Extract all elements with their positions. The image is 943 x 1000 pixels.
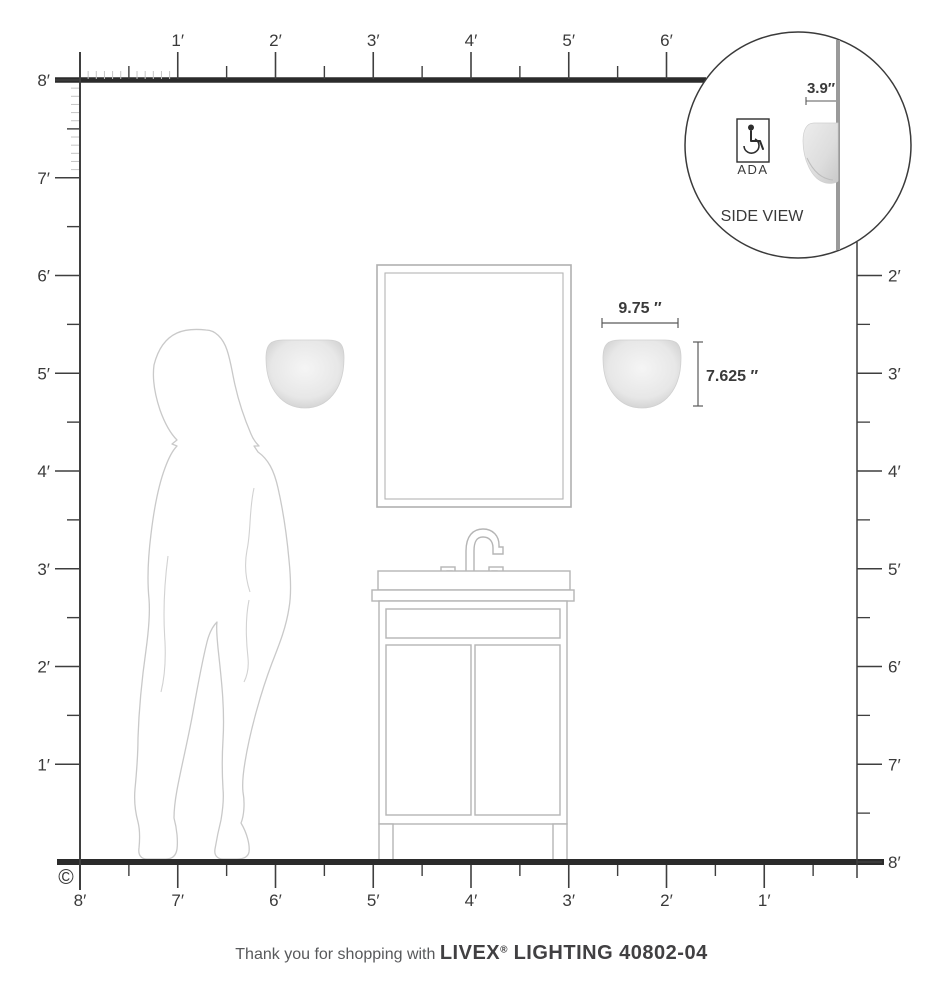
ruler-label: 1′ [171,31,184,50]
ruler-label: 5′ [562,31,575,50]
bottom-ruler: 8′7′6′5′4′3′2′1′ [74,865,813,910]
ruler-label: 6′ [888,658,901,677]
ruler-label: 8′ [888,853,901,872]
ruler-label: 5′ [367,891,380,910]
side-view-inset: 3.9″ ADA SIDE VIEW [685,32,911,258]
ruler-label: 2′ [888,267,901,286]
ruler-label: 1′ [37,755,50,774]
ada-icon-label: ADA [737,162,768,177]
mirror [377,265,571,507]
ruler-label: 7′ [37,169,50,188]
footer-prefix: Thank you for shopping with [235,946,440,963]
diagram-canvas: 9.75 ″ 7.625 ″ 1′2′3′4′5′6′ 8′7′6′5′4′3′… [0,0,943,1000]
ruler-label: 8′ [74,891,87,910]
height-dimension-label: 7.625 ″ [706,368,758,385]
wall-sconce-left [266,340,344,408]
ruler-label: 7′ [171,891,184,910]
ruler-label: 5′ [888,560,901,579]
ruler-label: 2′ [37,658,50,677]
ruler-label: 3′ [37,560,50,579]
ruler-label: 6′ [269,891,282,910]
ruler-label: 2′ [269,31,282,50]
ruler-label: 6′ [37,267,50,286]
ruler-label: 5′ [37,364,50,383]
ruler-label: 4′ [888,462,901,481]
vanity-door-left [386,645,471,815]
ruler-label: 4′ [37,462,50,481]
woman-silhouette [135,329,291,859]
ada-icon [737,119,769,162]
ruler-label: 3′ [367,31,380,50]
vanity-cabinet [372,529,574,861]
width-dimension [602,318,678,328]
inset-dimension-label: 3.9″ [807,80,835,97]
ruler-label: 3′ [888,364,901,383]
height-dimension [693,342,703,406]
top-ruler: 1′2′3′4′5′6′ [88,31,673,79]
side-view-label: SIDE VIEW [721,208,805,225]
ruler-label: 6′ [660,31,673,50]
vanity-leg-right [553,824,567,861]
scale-diagram-page: 9.75 ″ 7.625 ″ 1′2′3′4′5′6′ 8′7′6′5′4′3′… [0,0,943,1000]
vanity-drawer [386,609,560,638]
right-ruler: 2′3′4′5′6′7′8′ [857,267,901,873]
registered-mark: ® [500,945,507,956]
left-ruler: 8′7′6′5′4′3′2′1′ [37,71,79,774]
ruler-label: 4′ [465,31,478,50]
vanity-leg-left [379,824,393,861]
wall-sconce-right [603,340,681,408]
width-dimension-label: 9.75 ″ [618,300,662,317]
footer-brand: LIVEX [440,942,500,964]
footer-suffix: LIGHTING 40802-04 [508,942,708,964]
footer: Thank you for shopping with LIVEX® LIGHT… [0,942,943,965]
copyright-symbol: © [58,866,74,889]
ruler-label: 2′ [660,891,673,910]
ruler-label: 4′ [465,891,478,910]
ruler-label: 7′ [888,755,901,774]
ruler-label: 8′ [37,71,50,90]
ruler-label: 3′ [562,891,575,910]
vanity-door-right [475,645,560,815]
ruler-label: 1′ [758,891,771,910]
